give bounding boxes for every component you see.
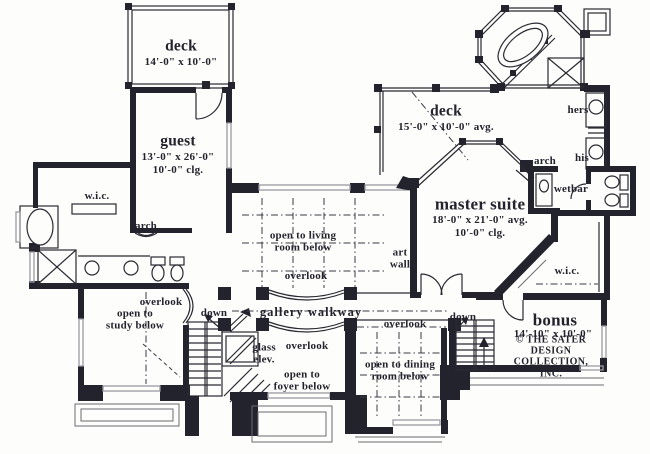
wic-right-label: w.i.c. bbox=[555, 265, 580, 277]
gallery-walkway-label: gallery walkway bbox=[260, 305, 362, 319]
toilets-left bbox=[151, 257, 184, 281]
open-to-study-label: open to study below bbox=[106, 308, 164, 333]
stairs-left bbox=[185, 322, 270, 436]
deck-upper-left-dims: 14'-0" x 10'-0" bbox=[145, 56, 218, 68]
shower-left bbox=[38, 250, 76, 284]
master-suite-ceiling: 10'-0" clg. bbox=[455, 227, 505, 239]
floor-plan: deck 14'-0" x 10'-0" guest 13'-0" x 26'-… bbox=[0, 0, 650, 454]
guest-room-label: guest bbox=[160, 132, 195, 149]
arch-left-symbol bbox=[135, 233, 157, 237]
dining-tower-walls bbox=[345, 328, 448, 442]
arch-left-label: arch bbox=[135, 220, 157, 232]
overlook-living-label: overlook bbox=[285, 270, 328, 282]
guest-room-dims: 13'-0" x 26'-0" bbox=[142, 151, 215, 163]
wetbar-nook bbox=[528, 166, 560, 242]
his-vanity-label: his bbox=[575, 152, 589, 164]
down-left-label: down bbox=[201, 307, 227, 319]
overlook-left-label: overlook bbox=[140, 296, 183, 308]
hers-vanity-label: hers bbox=[568, 104, 589, 116]
wic-left-label: w.i.c. bbox=[85, 190, 110, 202]
guest-room-ceiling: 10'-0" clg. bbox=[153, 164, 203, 176]
living-room-top-wall bbox=[232, 183, 408, 193]
master-suite-label: master suite bbox=[435, 194, 525, 213]
bonus-room-label: bonus bbox=[533, 310, 577, 329]
deck-upper-left-label: deck bbox=[165, 37, 197, 54]
deck-master-label: deck bbox=[430, 102, 462, 119]
overlook-dining-label: overlook bbox=[384, 318, 427, 330]
shower-master bbox=[548, 58, 584, 88]
art-wall-label: art wall bbox=[390, 247, 410, 272]
copyright-credit: © THE SATER DESIGN COLLECTION, INC. bbox=[502, 335, 601, 380]
vanity-sinks-left bbox=[78, 256, 150, 275]
deck-master-dims: 15'-0" x 10'-0" avg. bbox=[398, 121, 494, 133]
wetbar-label: wetbar bbox=[554, 183, 588, 195]
down-right-label: down bbox=[450, 311, 476, 323]
overlook-gallery-label: overlook bbox=[286, 340, 329, 352]
bathtub-left bbox=[16, 206, 58, 248]
bathtub-master bbox=[490, 15, 555, 76]
glass-elevator-label: glass elev. bbox=[252, 342, 276, 367]
arch-right-label: arch bbox=[534, 155, 556, 167]
chimney-block bbox=[582, 9, 610, 38]
master-double-doors bbox=[421, 274, 462, 295]
open-to-dining-label: open to dining room below bbox=[365, 359, 435, 384]
master-suite-dims: 18'-0" x 21'-0" avg. bbox=[432, 214, 528, 226]
open-to-living-label: open to living room below bbox=[270, 230, 336, 255]
master-bay-windows bbox=[408, 138, 533, 188]
open-to-foyer-label: open to foyer below bbox=[274, 369, 331, 394]
